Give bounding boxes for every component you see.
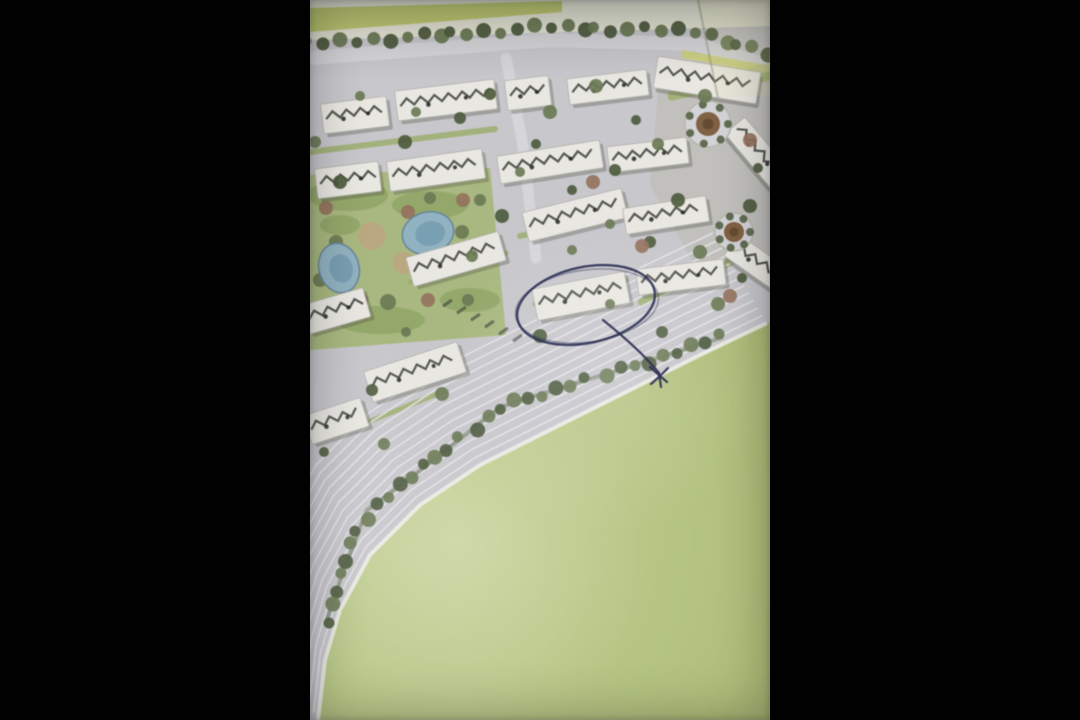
- site-plan: [310, 0, 770, 720]
- site-plan-photo: [310, 0, 770, 720]
- road-glare-2: [310, 0, 770, 720]
- letterbox-right: [770, 0, 1080, 720]
- letterbox-left: [0, 0, 310, 720]
- video-frame: [0, 0, 1080, 720]
